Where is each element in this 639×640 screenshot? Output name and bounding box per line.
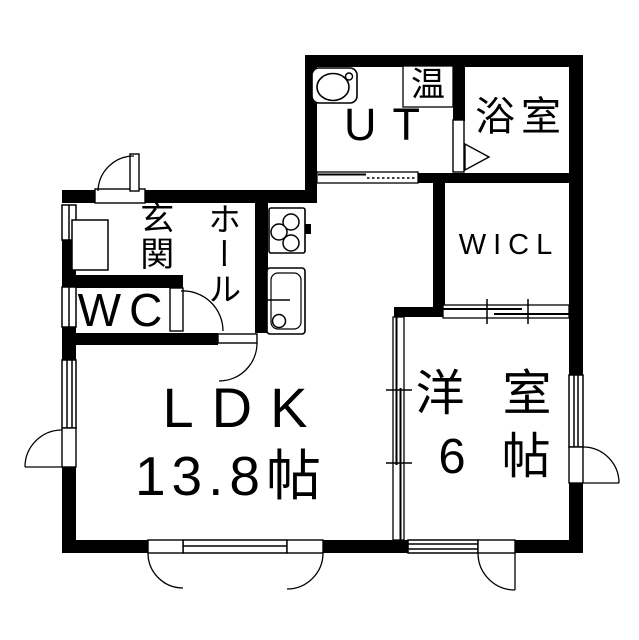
room-label-wc: WC xyxy=(68,286,180,334)
room-label-genkan: 玄関 xyxy=(135,200,171,272)
french-door-left-leaf xyxy=(148,540,183,553)
wall xyxy=(62,190,95,203)
room-size-western: 6帖 xyxy=(425,432,600,483)
wall xyxy=(62,467,76,553)
sliding-door-wicl xyxy=(443,305,569,318)
room-label-western: 洋室 xyxy=(415,369,590,420)
window xyxy=(408,540,478,553)
stove-icon xyxy=(269,208,305,253)
door-arc xyxy=(25,430,62,467)
shoe-cabinet-icon xyxy=(72,220,108,270)
wall xyxy=(394,307,445,317)
door-arc xyxy=(98,156,134,191)
room-label-bath: 浴室 xyxy=(456,96,586,138)
room-label-wicl: WICL xyxy=(434,230,584,260)
door-arc xyxy=(478,553,515,590)
wall xyxy=(323,540,408,553)
wall xyxy=(515,540,583,553)
door-arc xyxy=(287,553,323,589)
door-arc xyxy=(148,553,183,588)
window xyxy=(62,360,76,428)
room-size-ldk: 13.8帖 xyxy=(101,448,361,506)
entrance-door-leaf xyxy=(130,154,139,191)
room-label-ldk: LDK xyxy=(124,379,364,438)
ldk-left-door-leaf xyxy=(62,428,76,467)
kitchen-sink-icon xyxy=(267,268,305,334)
washbasin-icon xyxy=(312,68,357,103)
room-label-hall: ホール xyxy=(204,202,239,307)
hall-door-leaf xyxy=(218,334,257,343)
french-door-right-leaf xyxy=(287,540,323,553)
wall xyxy=(255,192,268,333)
sliding-door-ldk-western xyxy=(393,317,404,540)
bath-door-triangle-icon xyxy=(465,144,489,170)
room-label-ut: UT xyxy=(325,101,455,148)
floor-plan: 浴室 温 UT WICL 玄関 ホール WC LDK 13.8帖 洋室 6帖 xyxy=(0,0,639,640)
western-bottom-door-leaf xyxy=(478,540,515,553)
